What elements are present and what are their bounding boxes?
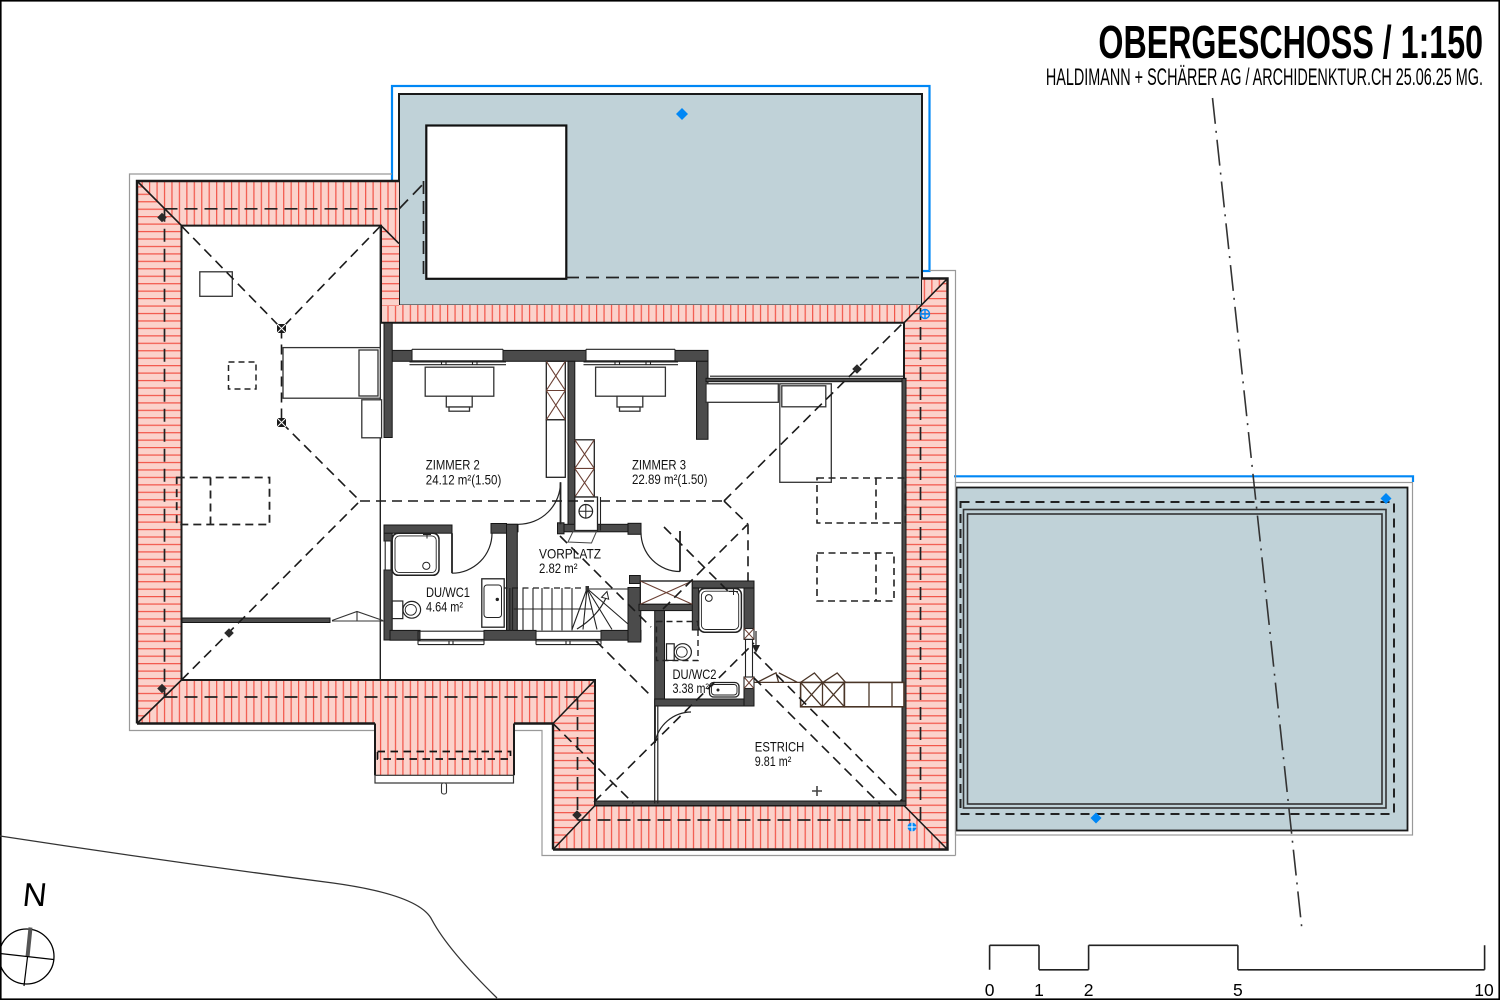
svg-text:9.81 m²: 9.81 m² — [755, 754, 792, 769]
svg-text:HALDIMANN + SCHÄRER AG / ARCHI: HALDIMANN + SCHÄRER AG / ARCHIDENKTUR.CH… — [1046, 64, 1483, 91]
svg-text:DU/WC1: DU/WC1 — [426, 585, 470, 600]
svg-text:0: 0 — [985, 980, 995, 1000]
svg-text:OBERGESCHOSS / 1:150: OBERGESCHOSS / 1:150 — [1098, 17, 1483, 68]
svg-text:2.82 m²: 2.82 m² — [539, 561, 578, 576]
svg-text:VORPLATZ: VORPLATZ — [539, 547, 601, 562]
svg-text:3.38 m²: 3.38 m² — [673, 681, 710, 696]
svg-text:5: 5 — [1233, 980, 1243, 1000]
svg-text:22.89 m²(1.50): 22.89 m²(1.50) — [632, 472, 708, 487]
svg-text:4.64 m²: 4.64 m² — [426, 600, 463, 615]
svg-text:DU/WC2: DU/WC2 — [673, 667, 717, 682]
svg-text:N: N — [21, 877, 49, 914]
svg-text:10: 10 — [1474, 980, 1494, 1000]
svg-text:1: 1 — [1034, 980, 1044, 1000]
svg-text:ZIMMER 3: ZIMMER 3 — [632, 458, 686, 473]
svg-text:2: 2 — [1084, 980, 1094, 1000]
svg-text:24.12 m²(1.50): 24.12 m²(1.50) — [426, 473, 502, 488]
svg-text:ESTRICH: ESTRICH — [755, 740, 805, 755]
svg-text:ZIMMER 2: ZIMMER 2 — [426, 458, 480, 473]
